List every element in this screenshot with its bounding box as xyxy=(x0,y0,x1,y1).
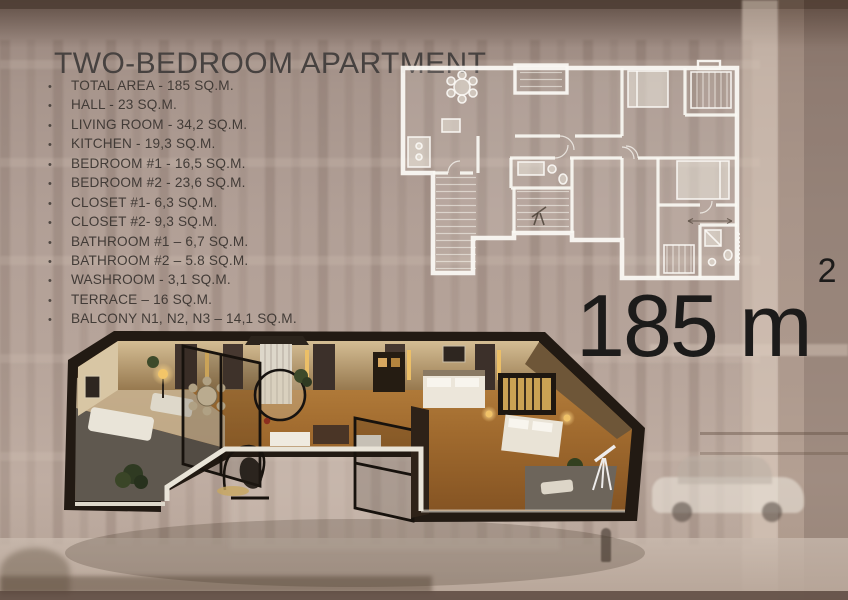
floor-plan-drawing xyxy=(400,55,740,285)
balcony-railing-line xyxy=(700,452,848,455)
list-item-label: LIVING ROOM - 34,2 SQ.M. xyxy=(71,117,247,132)
background-top-strip xyxy=(0,0,848,9)
bed-2 xyxy=(501,415,563,458)
list-item-label: CLOSET #2- 9,3 SQ.M. xyxy=(71,214,218,229)
list-item-label: KITCHEN - 19,3 SQ.M. xyxy=(71,136,216,151)
list-item: •CLOSET #2- 9,3 SQ.M. xyxy=(46,214,376,233)
bullet-icon: • xyxy=(46,256,71,268)
list-item-label: BATHROOM #1 – 6,7 SQ.M. xyxy=(71,234,248,249)
bullet-icon: • xyxy=(46,295,71,307)
bullet-icon: • xyxy=(46,275,71,287)
list-item-label: TOTAL AREA - 185 SQ.M. xyxy=(71,78,234,93)
bullet-icon: • xyxy=(46,120,71,132)
plan-closet-2 xyxy=(664,245,694,273)
brochure-slide: TWO-BEDROOM APARTMENT •TOTAL AREA - 185 … xyxy=(0,0,848,600)
list-item: •BATHROOM #2 – 5.8 SQ.M. xyxy=(46,253,376,272)
bullet-icon: • xyxy=(46,198,71,210)
list-item: •KITCHEN - 19,3 SQ.M. xyxy=(46,136,376,155)
list-item: •BATHROOM #1 – 6,7 SQ.M. xyxy=(46,234,376,253)
list-item-label: BEDROOM #2 - 23,6 SQ.M. xyxy=(71,175,246,190)
bullet-icon: • xyxy=(46,217,71,229)
list-item-label: CLOSET #1- 6,3 SQ.M. xyxy=(71,195,218,210)
specs-list: •TOTAL AREA - 185 SQ.M. •HALL - 23 SQ.M.… xyxy=(46,78,376,331)
balcony-railing-line xyxy=(700,432,848,435)
list-item: •TOTAL AREA - 185 SQ.M. xyxy=(46,78,376,97)
plan-bed-2 xyxy=(677,161,729,199)
list-item-label: WASHROOM - 3,1 SQ.M. xyxy=(71,272,231,287)
background-bottom-strip xyxy=(0,591,848,600)
list-item: •CLOSET #1- 6,3 SQ.M. xyxy=(46,195,376,214)
list-item: •HALL - 23 SQ.M. xyxy=(46,97,376,116)
list-item: •BEDROOM #1 - 16,5 SQ.M. xyxy=(46,156,376,175)
list-item-label: BATHROOM #2 – 5.8 SQ.M. xyxy=(71,253,248,268)
bullet-icon: • xyxy=(46,81,71,93)
list-item-label: BEDROOM #1 - 16,5 SQ.M. xyxy=(71,156,246,171)
plan-closet-1 xyxy=(691,72,731,108)
bullet-icon: • xyxy=(46,139,71,151)
list-item: •LIVING ROOM - 34,2 SQ.M. xyxy=(46,117,376,136)
plan-bed-1 xyxy=(628,71,668,107)
list-item: •BEDROOM #2 - 23,6 SQ.M. xyxy=(46,175,376,194)
area-superscript: 2 xyxy=(818,252,837,290)
bullet-icon: • xyxy=(46,159,71,171)
list-item-label: TERRACE – 16 SQ.M. xyxy=(71,292,212,307)
bed-1 xyxy=(423,370,485,408)
closet-wardrobe-glow xyxy=(498,373,556,415)
apartment-3d-render xyxy=(55,318,665,590)
car-wheel xyxy=(672,502,692,522)
list-item-label: HALL - 23 SQ.M. xyxy=(71,97,177,112)
red-vase xyxy=(264,418,270,424)
bullet-icon: • xyxy=(46,178,71,190)
bullet-icon: • xyxy=(46,237,71,249)
car-wheel xyxy=(762,502,782,522)
list-item: •TERRACE – 16 SQ.M. xyxy=(46,292,376,311)
parked-car-roof xyxy=(678,456,772,484)
render-shadow xyxy=(65,519,645,587)
list-item: •WASHROOM - 3,1 SQ.M. xyxy=(46,272,376,291)
bullet-icon: • xyxy=(46,100,71,112)
